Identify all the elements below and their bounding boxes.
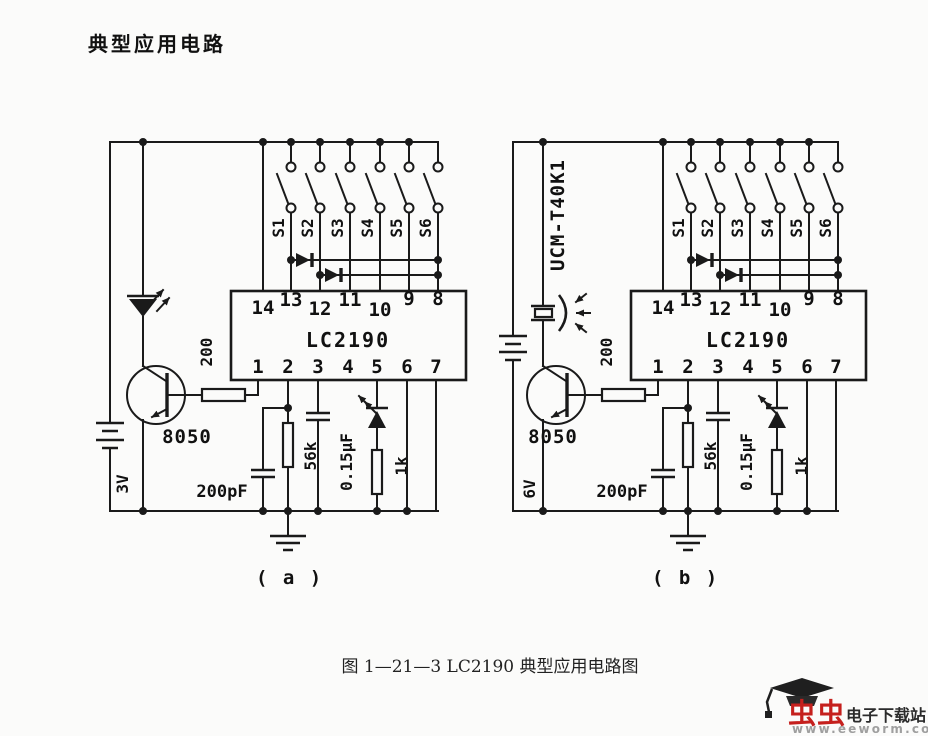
switch-label: S5 [387,218,406,237]
switch-label: S2 [298,218,317,237]
battery-3v: 3V [96,423,132,494]
pin-number: 10 [369,299,392,321]
battery-label: 3V [113,474,132,494]
subfigure-label-b: ( b ) [652,567,719,589]
switch-contacts [687,163,843,213]
watermark-logo: 虫虫 电子下载站 www.eeworm.com [740,666,928,735]
ir-led [127,142,169,366]
pin-number: 9 [403,288,414,310]
led-and-r1k: 1k [359,380,411,511]
subfigure-label-a: ( a ) [256,567,323,589]
transistor-label: 8050 [162,426,212,448]
ic-lc2190: 14 13 12 11 10 9 8 LC2190 1 2 3 4 5 6 7 [231,288,466,380]
switch-label: S2 [698,218,717,237]
ic-lc2190: 14 13 12 11 10 9 8 LC2190 1 2 3 4 5 6 7 [631,288,866,380]
pin-number: 3 [712,356,723,378]
switch-bank: S1 S2 S3 S4 S5 S6 [669,142,843,291]
r56k-and-c200pF: 56k 200pF [196,380,320,550]
pin-number: 9 [803,288,814,310]
watermark-url: www.eeworm.com [792,722,928,736]
switch-blades [677,174,835,203]
pin6-pin7-wires [807,380,836,511]
c200pF-label: 200pF [196,482,247,502]
pin-number: 8 [832,288,843,310]
pin-number: 13 [680,289,703,311]
ic-name: LC2190 [706,328,790,352]
pin-number: 7 [830,356,841,378]
diode-bus [691,253,838,282]
pin-number: 14 [252,297,275,319]
pin-number: 14 [652,297,675,319]
switch-label: S3 [328,218,347,237]
r56k-and-c200pF: 56k 200pF [596,380,720,550]
c015uF-label: 0.15µF [737,433,756,491]
pin-number: 11 [739,289,762,311]
pin-number: 12 [709,298,732,320]
pin6-pin7-wires [407,380,436,511]
switch-blades [277,174,435,203]
battery-6v: 6V [499,336,539,499]
pin-number: 6 [401,356,412,378]
switch-label: S1 [269,218,288,237]
transistor-label: 8050 [528,426,578,448]
pin-number: 4 [342,356,353,378]
r1k-label: 1k [392,456,411,476]
pin-number: 8 [432,288,443,310]
switch-label: S6 [816,218,835,237]
ground-symbol [670,536,706,550]
ic-name: LC2190 [306,328,390,352]
pin-number: 4 [742,356,753,378]
base-resistor-label: 200 [197,338,216,367]
led-and-r1k: 1k [759,380,811,511]
pin-number: 7 [430,356,441,378]
r1k-label: 1k [792,456,811,476]
circuit-b: 6V UCM-T40K1 8050 200 [499,138,866,550]
pin-number: 13 [280,289,303,311]
pin-number: 1 [652,356,663,378]
switch-label: S5 [787,218,806,237]
switch-label: S3 [728,218,747,237]
battery-label: 6V [520,479,539,499]
pin-number: 3 [312,356,323,378]
base-resistor-label: 200 [597,338,616,367]
switch-bank: S1 S2 S3 S4 S5 S6 [269,142,443,291]
pin-number: 1 [252,356,263,378]
diode-bus [291,253,438,282]
pin-number: 10 [769,299,792,321]
pin-number: 11 [339,289,362,311]
circuit-a: 3V 8050 200 [96,138,466,550]
pin-number: 5 [371,356,382,378]
switch-label: S4 [758,218,777,237]
transducer-label: UCM-T40K1 [547,159,569,271]
pin-number: 5 [771,356,782,378]
c200pF-label: 200pF [596,482,647,502]
figure-caption: 图 1—21—3 LC2190 典型应用电路图 [300,652,680,677]
c015uF-label: 0.15µF [337,433,356,491]
ground-symbol [270,536,306,550]
switch-contacts [287,163,443,213]
switch-label: S6 [416,218,435,237]
schematic-canvas: 3V 8050 200 [0,0,928,735]
pin-number: 12 [309,298,332,320]
pin-number: 6 [801,356,812,378]
pin-number: 2 [682,356,693,378]
switch-label: S4 [358,218,377,237]
pin-number: 2 [282,356,293,378]
ultrasonic-transducer: UCM-T40K1 [531,142,590,366]
switch-label: S1 [669,218,688,237]
